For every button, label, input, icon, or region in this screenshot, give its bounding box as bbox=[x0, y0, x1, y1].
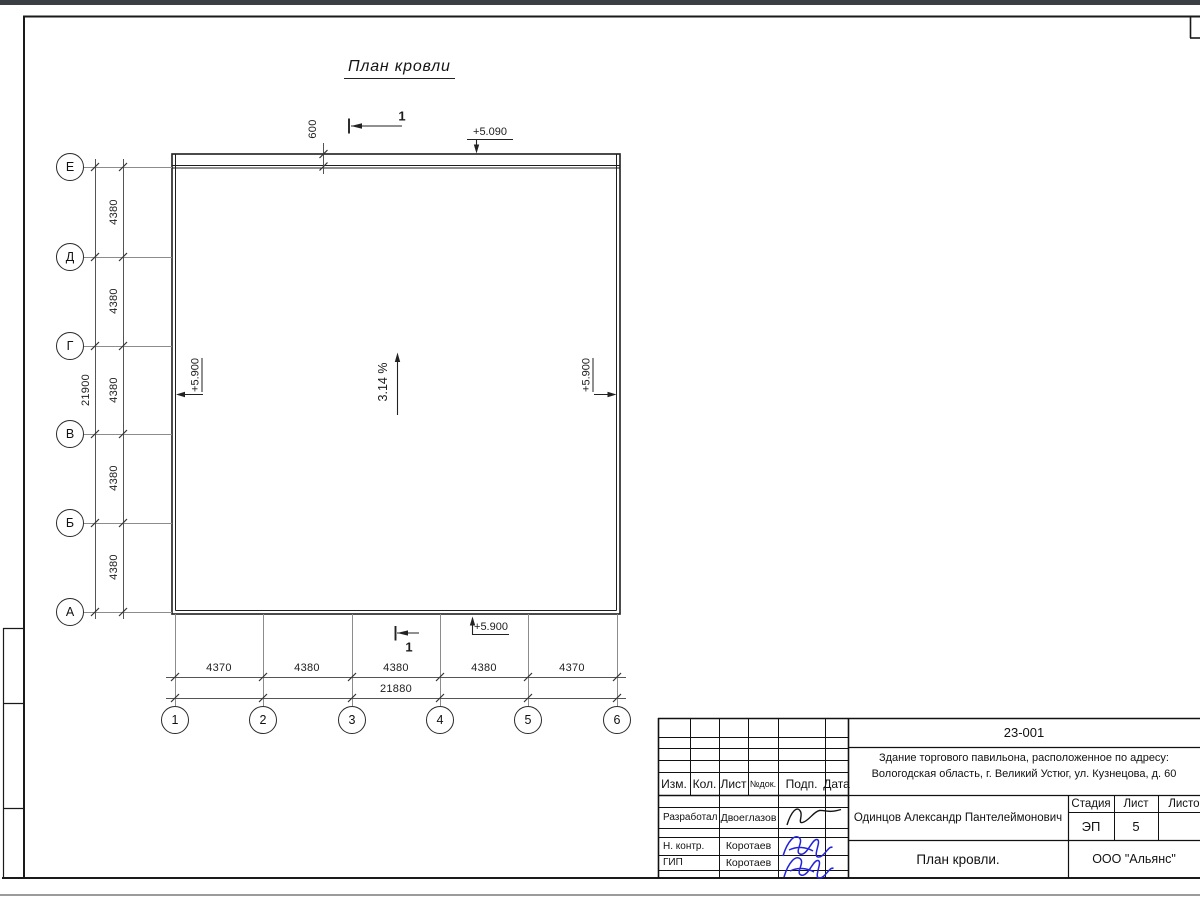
axis-label: 3 bbox=[349, 713, 356, 727]
axis-label: А bbox=[66, 605, 74, 619]
axis-label: 5 bbox=[525, 713, 532, 727]
elevation-top: +5.090 bbox=[467, 126, 513, 140]
dim-left-1: 4380 bbox=[108, 199, 120, 225]
tb-object-line1: Здание торгового павильона, расположенно… bbox=[848, 749, 1200, 766]
tb-name-korotaev-1: Коротаев bbox=[719, 837, 778, 855]
dim-left-3: 4380 bbox=[108, 377, 120, 403]
section-label-top: 1 bbox=[398, 109, 405, 124]
roof-outline bbox=[172, 154, 620, 614]
axis-bubble-row-e: Е bbox=[56, 153, 84, 181]
axis-bubble-col-1: 1 bbox=[161, 706, 189, 734]
tb-role-gip: ГИП bbox=[659, 855, 723, 870]
dim-bottom-4: 4380 bbox=[471, 662, 497, 674]
signature-dvoeglazov bbox=[787, 809, 841, 825]
dim-overhang-600: 600 bbox=[307, 119, 319, 138]
section-label-bottom: 1 bbox=[405, 640, 412, 655]
elevation-bottom: +5.900 bbox=[473, 621, 509, 635]
tb-header-izm: Изм. bbox=[658, 772, 690, 795]
tb-role-razrabotal: Разработал bbox=[659, 807, 723, 828]
elevation-left: +5.900 bbox=[190, 358, 203, 392]
tb-doc-number: 23-001 bbox=[848, 718, 1200, 747]
axis-label: 2 bbox=[260, 713, 267, 727]
tb-object-line2: Вологодская область, г. Великий Устюг, у… bbox=[848, 765, 1200, 782]
axis-label: В bbox=[66, 427, 74, 441]
section-mark-bottom bbox=[396, 626, 420, 641]
dim-bottom-3: 4380 bbox=[383, 662, 409, 674]
axis-bubble-col-3: 3 bbox=[338, 706, 366, 734]
dim-left-4: 4380 bbox=[108, 465, 120, 491]
axis-bubble-col-4: 4 bbox=[426, 706, 454, 734]
axis-label: Б bbox=[66, 516, 74, 530]
dim-bottom-2: 4380 bbox=[294, 662, 320, 674]
axis-bubble-row-b: Б bbox=[56, 509, 84, 537]
axis-bubble-row-v: В bbox=[56, 420, 84, 448]
tb-header-data: Дата bbox=[825, 772, 848, 795]
axis-label: 4 bbox=[437, 713, 444, 727]
axis-bubble-row-g: Г bbox=[56, 332, 84, 360]
dim-bottom-1: 4370 bbox=[206, 662, 232, 674]
axis-grid-lines bbox=[84, 168, 618, 707]
axis-label: Д bbox=[66, 250, 74, 264]
drawing-title: План кровли bbox=[344, 58, 455, 79]
tb-stage-label: Стадия bbox=[1068, 795, 1114, 812]
tb-role-nkontr: Н. контр. bbox=[659, 837, 723, 855]
slope-label: 3.14 % bbox=[376, 363, 390, 402]
tb-sheet-label: Лист bbox=[1114, 795, 1158, 812]
axis-label: 6 bbox=[614, 713, 621, 727]
dim-left-5: 4380 bbox=[108, 554, 120, 580]
axis-bubble-col-2: 2 bbox=[249, 706, 277, 734]
dim-bottom-5: 4370 bbox=[559, 662, 585, 674]
dim-left-total: 21900 bbox=[80, 374, 92, 406]
tb-sheets-label: Листов bbox=[1161, 795, 1200, 812]
signature-korotaev-2 bbox=[784, 858, 834, 878]
tb-header-kol: Кол. bbox=[690, 772, 719, 795]
axis-bubble-row-d: Д bbox=[56, 243, 84, 271]
drawing-sheet: План кровли Е Д Г В Б А 1 2 3 4 5 6 4380… bbox=[0, 0, 1200, 900]
tb-name-dvoeglazov: Двоеглазов bbox=[719, 807, 778, 828]
tb-sheet-title: План кровли. bbox=[848, 840, 1068, 878]
elevation-leaders bbox=[176, 140, 617, 635]
tb-header-list: Лист bbox=[719, 772, 748, 795]
tb-name-korotaev-2: Коротаев bbox=[719, 855, 778, 870]
tb-company: ООО "Альянс" bbox=[1068, 840, 1200, 878]
axis-label: Г bbox=[67, 339, 74, 353]
section-mark-top bbox=[349, 119, 402, 134]
elevation-right: +5.900 bbox=[581, 358, 594, 392]
dimension-ticks bbox=[91, 150, 621, 702]
signatures bbox=[783, 809, 841, 878]
slope-arrow bbox=[395, 353, 400, 416]
dim-left-2: 4380 bbox=[108, 288, 120, 314]
axis-bubble-row-a: А bbox=[56, 598, 84, 626]
axis-label: Е bbox=[66, 160, 74, 174]
tb-header-podp: Подп. bbox=[778, 772, 825, 795]
axis-bubble-col-6: 6 bbox=[603, 706, 631, 734]
tb-sheet-value: 5 bbox=[1114, 812, 1158, 840]
axis-label: 1 bbox=[172, 713, 179, 727]
tb-header-ndok: №док. bbox=[748, 772, 778, 795]
tb-stage-value: ЭП bbox=[1068, 812, 1114, 840]
axis-bubble-col-5: 5 bbox=[514, 706, 542, 734]
dim-bottom-total: 21880 bbox=[380, 683, 412, 695]
tb-chief-name: Одинцов Александр Пантелеймонович bbox=[848, 795, 1068, 840]
